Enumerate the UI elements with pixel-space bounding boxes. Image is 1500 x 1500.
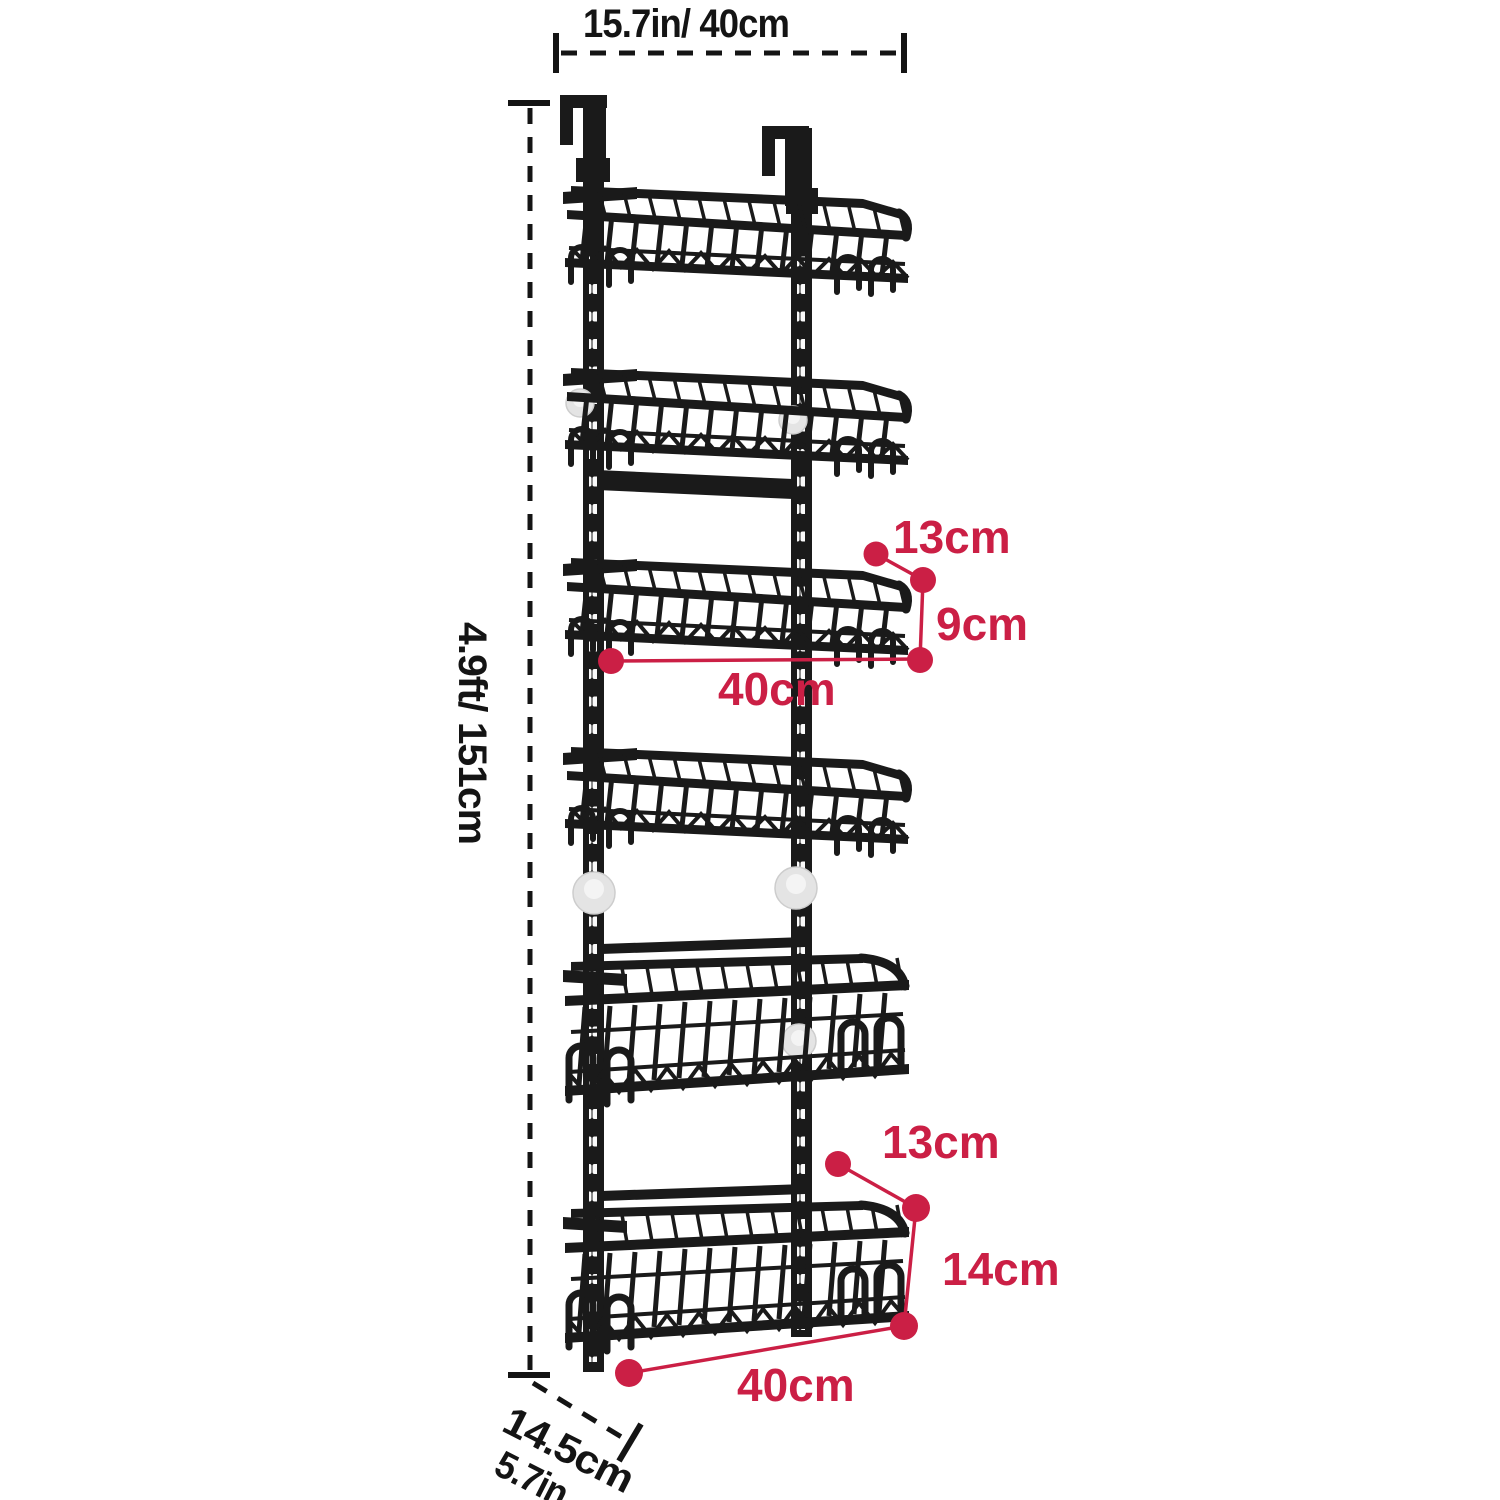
height-dimension-label: 4.9ft/ 151cm	[450, 622, 494, 844]
depth-dimension: 14.5cm 5.7in	[488, 1383, 641, 1500]
basket-tier-5	[563, 937, 909, 1104]
crossbar	[597, 470, 793, 499]
width-dimension-label: 15.7in/ 40cm	[583, 2, 789, 46]
dimension-dot	[598, 648, 624, 674]
dimension-dot	[864, 542, 889, 567]
basket-tier-1	[563, 186, 908, 294]
upper-basket-height-label: 9cm	[936, 598, 1028, 650]
bottom-basket-depth-label: 13cm	[882, 1116, 1000, 1168]
left-door-hook-icon	[560, 95, 610, 182]
width-dimension: 15.7in/ 40cm	[556, 2, 904, 73]
dimension-diagram: 15.7in/ 40cm 4.9ft/ 151cm 14.5cm 5.7in 1…	[0, 0, 1500, 1500]
over-door-rack	[560, 95, 909, 1372]
upper-basket-annotation: 13cm 9cm 40cm	[598, 511, 1028, 715]
basket-tier-2	[563, 368, 908, 476]
basket-tier-6	[563, 1184, 909, 1351]
height-dimension: 4.9ft/ 151cm	[450, 103, 550, 1375]
bottom-basket-height-label: 14cm	[942, 1243, 1060, 1295]
dimension-dot	[910, 567, 936, 593]
upper-basket-width-label: 40cm	[718, 663, 836, 715]
dimension-dot	[890, 1312, 918, 1340]
upper-basket-depth-label: 13cm	[893, 511, 1011, 563]
right-rail	[791, 128, 812, 1337]
bottom-basket-width-label: 40cm	[737, 1359, 855, 1411]
dimension-dot	[907, 647, 933, 673]
basket-tier-4	[563, 747, 908, 855]
dimension-dot	[902, 1194, 930, 1222]
dimension-dot	[615, 1359, 643, 1387]
dimension-dot	[825, 1151, 851, 1177]
